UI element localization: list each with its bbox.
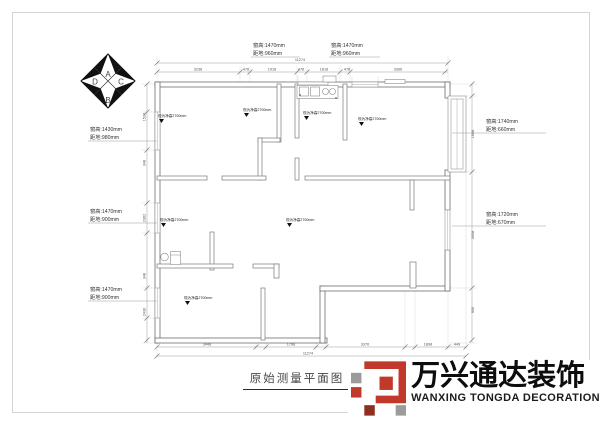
dim-right-0: 1668 [471, 130, 475, 138]
outer-walls [155, 82, 450, 343]
window-label-line1: 窗高:1470mm [331, 41, 363, 49]
dim-bottom-0: 3448 [203, 343, 211, 347]
dim-top-0: 3238 [194, 68, 202, 72]
page-title: 原始测量平面图 [250, 371, 345, 385]
window-label-line1: 窗高:1470mm [90, 207, 122, 215]
room-label: 现为净高2700mm [303, 110, 331, 115]
window-label-line2: 距地:900mm [90, 293, 119, 301]
dim-bottom-2: 3376 [361, 343, 369, 347]
switch-dot [299, 94, 301, 96]
dim-left-2: 2362 [143, 214, 147, 222]
dim-bottom-total: 11274 [303, 352, 313, 356]
bathroom-fixtures [161, 252, 181, 265]
windows [155, 82, 466, 318]
dim-left-4: 2430 [143, 308, 147, 316]
room-label: 现为净高2700mm [358, 116, 386, 121]
window-label-line1: 窗高:1720mm [486, 210, 518, 218]
room-label: 现为净高2700mm [158, 113, 186, 118]
room-label: 现为净高2700mm [184, 295, 212, 300]
window-label-top-2: 窗高:1470mm 距地:960mm [329, 41, 380, 57]
switch-dot [335, 97, 337, 99]
interior-walls [157, 84, 450, 340]
window-label-top-1: 窗高:1470mm 距地:960mm [251, 41, 300, 57]
room-labels: 现为净高2700mm 现为净高2700mm 现为净高2700mm 现为净高270… [158, 107, 386, 305]
vent-icon [385, 80, 405, 84]
dim-top-total: 11274 [295, 58, 305, 62]
dim-left-1: 348 [143, 160, 147, 166]
company-logo: 万兴通达装饰 WANXING TONGDA DECORATION [348, 360, 600, 423]
dimensions-bottom: 3448 1768 3376 1898 449 11274 [155, 343, 469, 359]
compass-letter-left: D [92, 78, 98, 87]
logo-mark-icon [351, 360, 406, 418]
dim-bottom-1: 1768 [287, 343, 295, 347]
window-label-left-3: 窗高:1470mm 距地:900mm [88, 285, 157, 301]
dim-left-3: 348 [143, 273, 147, 279]
sink-icon [330, 89, 336, 95]
compass-letter-bottom: B [105, 96, 110, 105]
window-label-line2: 距地:960mm [253, 49, 282, 57]
dimensions-left: 1530 348 2362 348 2430 [143, 82, 150, 344]
window-label-line2: 距地:670mm [486, 218, 515, 226]
window-label-line1: 窗高:1430mm [90, 125, 122, 133]
dim-top-1: 478 [243, 68, 249, 72]
drawing-title: 原始测量平面图 [243, 371, 351, 390]
dim-top-3: 478 [298, 68, 304, 72]
compass-letter-right: C [118, 78, 124, 87]
window-label-line2: 距地:980mm [90, 133, 119, 141]
bay-window [448, 96, 466, 172]
flue-icon [323, 76, 336, 82]
basin-icon [171, 252, 181, 265]
window-label-line1: 窗高:1470mm [253, 41, 285, 49]
window-label-line1: 窗高:1470mm [90, 285, 122, 293]
dim-right-1: 3008 [471, 231, 475, 239]
window-label-left-2: 窗高:1470mm 距地:900mm [88, 207, 157, 223]
dim-left-0: 1530 [143, 113, 147, 121]
compass-letter-top: A [105, 70, 111, 79]
dim-top-5: 478 [344, 68, 350, 72]
dimensions-right: 1668 3008 900 [470, 82, 476, 344]
dim-top-4: 1818 [320, 68, 328, 72]
window-label-left-1: 窗高:1430mm 距地:980mm [88, 125, 157, 141]
window-label-line1: 窗高:1740mm [486, 117, 518, 125]
dim-bottom-3: 1898 [424, 343, 432, 347]
dim-bottom-4: 449 [454, 343, 460, 347]
dim-top-2: 1918 [268, 68, 276, 72]
dim-top-6: 3366 [394, 68, 402, 72]
room-label: 现为净高2700mm [243, 107, 271, 112]
window-label-line2: 距地:900mm [90, 215, 119, 223]
logo-chinese-name: 万兴通达装饰 [411, 361, 600, 391]
compass-icon: A C B D [81, 54, 135, 108]
dimensions-top: 11274 3238 478 1918 478 1818 478 3366 [155, 58, 451, 75]
room-label: 现为净高2700mm [160, 217, 188, 222]
window-label-line2: 距地:660mm [486, 125, 515, 133]
stove-icon [311, 87, 320, 96]
logo-english-name: WANXING TONGDA DECORATION [411, 392, 600, 404]
stove-icon [300, 87, 309, 96]
toilet-icon [161, 253, 169, 261]
sink-icon [323, 89, 329, 95]
room-label: 现为净高2700mm [286, 217, 314, 222]
window-label-line2: 距地:960mm [331, 49, 360, 57]
dim-right-2: 900 [471, 307, 475, 313]
extension-lines [142, 56, 477, 358]
